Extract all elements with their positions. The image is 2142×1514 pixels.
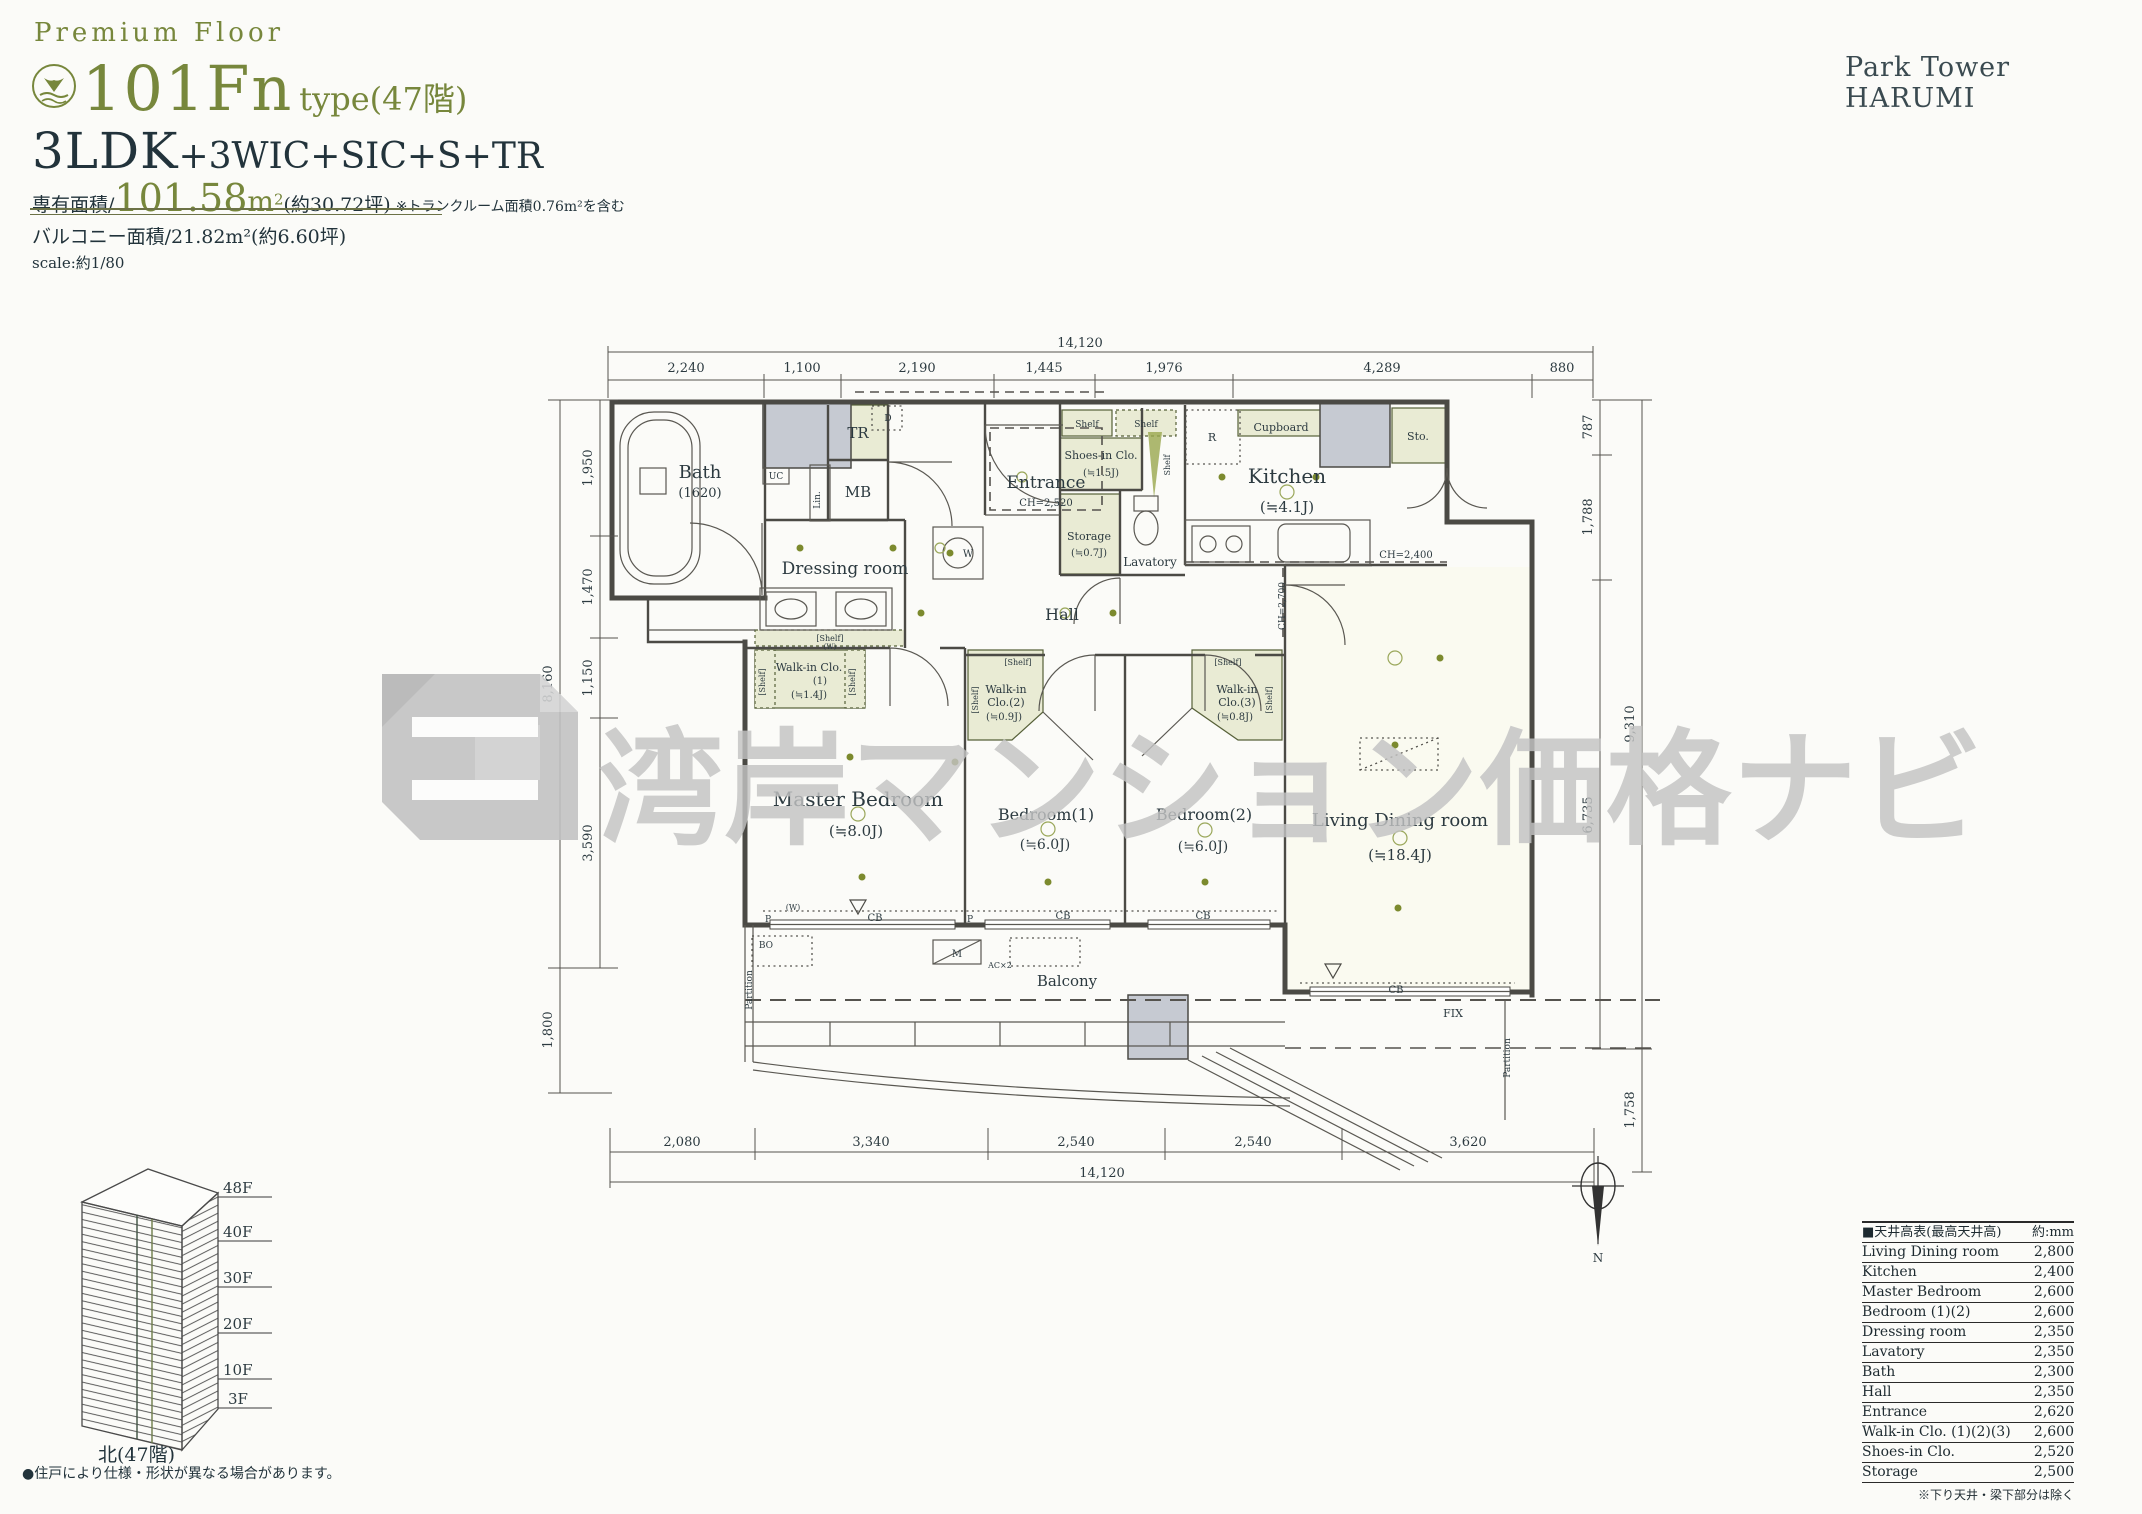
- dim-bottom-total: 14,120: [1079, 1166, 1125, 1181]
- ceiling-height-table: ■天井高表(最高天井高) 約:mm Living Dining room 2,8…: [1862, 1221, 2074, 1505]
- row-height: 2,600: [2034, 1304, 2074, 1320]
- bath-size: (1620): [678, 486, 721, 501]
- dim-right-1: 787: [1581, 415, 1596, 440]
- dim-top-7: 880: [1550, 361, 1575, 376]
- row-room: Bedroom (1)(2): [1862, 1304, 1970, 1320]
- row-room: Walk-in Clo. (1)(2)(3): [1862, 1424, 2011, 1440]
- table-row: Shoes-in Clo. 2,520: [1862, 1443, 2074, 1463]
- partition-right-label: Partition: [1503, 1038, 1513, 1078]
- brand-title: Park Tower HARUMI: [1845, 52, 2142, 114]
- dim-top-2: 1,100: [783, 361, 820, 376]
- duct-label: D: [884, 414, 891, 424]
- cb-label-4: CB: [1389, 985, 1404, 996]
- uc-label: UC: [769, 472, 784, 482]
- type-name: 101Fn: [82, 52, 293, 125]
- fix-label: FIX: [1443, 1007, 1463, 1020]
- row-height: 2,620: [2034, 1404, 2074, 1420]
- row-room: Storage: [1862, 1464, 1918, 1480]
- layout-suffix: +3WIC+SIC+S+TR: [178, 136, 543, 177]
- table-row: Bath 2,300: [1862, 1363, 2074, 1383]
- p-label-1: P: [765, 915, 771, 925]
- shoes-closet-size: (≒1.5J): [1083, 468, 1119, 479]
- m-label: M: [952, 949, 962, 960]
- whale-logo-icon: [30, 62, 78, 110]
- dim-top-1: 2,240: [667, 361, 704, 376]
- pillar-balcony: [1128, 995, 1188, 1059]
- sto-label: Sto.: [1407, 430, 1429, 443]
- row-room: Hall: [1862, 1384, 1892, 1400]
- dim-bottom-2: 3,340: [852, 1135, 889, 1150]
- row-height: 2,400: [2034, 1264, 2074, 1280]
- table-row: Dressing room 2,350: [1862, 1323, 2074, 1343]
- row-room: Dressing room: [1862, 1324, 1966, 1340]
- shoes-shelf-3: Shelf: [1163, 454, 1172, 476]
- hall-label: Hall: [1045, 605, 1079, 624]
- dim-bottom-5: 3,620: [1449, 1135, 1486, 1150]
- ceiling-table-unit: 約:mm: [2032, 1221, 2074, 1240]
- wic3-shelf: [Shelf]: [1214, 658, 1241, 667]
- shelf-w-label: [Shelf]: [816, 634, 843, 643]
- fridge-label: R: [1208, 431, 1217, 444]
- compass-n-label: N: [1593, 1251, 1604, 1265]
- dressing-room-label: Dressing room: [782, 559, 909, 579]
- dim-top-6: 4,289: [1363, 361, 1400, 376]
- table-row: Hall 2,350: [1862, 1383, 2074, 1403]
- dim-left-below: 1,800: [541, 1011, 556, 1048]
- table-row: Entrance 2,620: [1862, 1403, 2074, 1423]
- washer-label: W: [963, 549, 974, 560]
- floor-20f: 20F: [223, 1315, 253, 1333]
- type-suffix: type(47階): [299, 80, 467, 118]
- floor-48f: 48F: [223, 1179, 253, 1197]
- table-row: Walk-in Clo. (1)(2)(3) 2,600: [1862, 1423, 2074, 1443]
- row-height: 2,350: [2034, 1344, 2074, 1360]
- tower-right-face: [182, 1193, 218, 1450]
- cb-label-2: CB: [1056, 911, 1071, 922]
- table-row: Kitchen 2,400: [1862, 1263, 2074, 1283]
- lavatory-label: Lavatory: [1123, 555, 1177, 569]
- dim-bottom-3: 2,540: [1057, 1135, 1094, 1150]
- row-room: Bath: [1862, 1364, 1895, 1380]
- ceiling-table-header: ■天井高表(最高天井高) 約:mm: [1862, 1221, 2074, 1243]
- kitchen-size: (≒4.1J): [1260, 498, 1314, 516]
- row-room: Kitchen: [1862, 1264, 1917, 1280]
- cupboard-label: Cupboard: [1253, 421, 1308, 434]
- floorplan-page: Bath (1620) TR MB Dressing room Entrance…: [0, 0, 2142, 1514]
- dim-top-4: 1,445: [1025, 361, 1062, 376]
- dim-bottom-4: 2,540: [1234, 1135, 1271, 1150]
- row-height: 2,300: [2034, 1364, 2074, 1380]
- dim-top-total: 14,120: [1057, 336, 1103, 351]
- storage-label: Storage: [1067, 530, 1111, 543]
- row-height: 2,350: [2034, 1324, 2074, 1340]
- ac-label: AC×2: [987, 961, 1012, 970]
- table-row: Bedroom (1)(2) 2,600: [1862, 1303, 2074, 1323]
- compass-needle: [1592, 1186, 1604, 1246]
- dim-bottom-1: 2,080: [663, 1135, 700, 1150]
- floor-40f: 40F: [223, 1223, 253, 1241]
- trunk-room-label: TR: [847, 424, 869, 442]
- wic1-number: (1): [813, 676, 827, 687]
- watermark-text: 湾岸マンション価格ナビ: [598, 688, 1984, 869]
- table-row: Storage 2,500: [1862, 1463, 2074, 1483]
- dim-right-2: 1,788: [1581, 498, 1596, 535]
- type-title: 101Fntype(47階): [82, 52, 467, 125]
- building-elevation: 48F 40F 30F 20F 10F 3F: [40, 1155, 330, 1485]
- toilet: [1134, 511, 1158, 545]
- scale-line: scale:約1/80: [32, 252, 124, 273]
- dim-left-2: 1,470: [581, 568, 596, 605]
- shoes-shelf-1: Shelf: [1075, 420, 1099, 430]
- layout-title: 3LDK+3WIC+SIC+S+TR: [32, 122, 543, 180]
- ceiling-table-footnote: ※下り天井・梁下部分は除く: [1862, 1483, 2074, 1505]
- row-height: 2,520: [2034, 1444, 2074, 1460]
- dim-top-3: 2,190: [898, 361, 935, 376]
- floor-30f: 30F: [223, 1269, 253, 1287]
- partition-left-label: Partition: [745, 970, 755, 1010]
- floor-10f: 10F: [223, 1361, 253, 1379]
- ceiling-table-title: ■天井高表(最高天井高): [1862, 1221, 2001, 1240]
- balcony-label: Balcony: [1037, 972, 1098, 990]
- shoes-closet-label: Shoes-in Clo.: [1064, 449, 1137, 462]
- table-row: Master Bedroom 2,600: [1862, 1283, 2074, 1303]
- kitchen-label: Kitchen: [1248, 464, 1326, 488]
- watermark-logo: [375, 665, 590, 850]
- meter-box-label: MB: [845, 483, 871, 501]
- floor-labels: 48F 40F 30F 20F 10F 3F: [223, 1179, 253, 1408]
- kitchen-ch-label: CH=2,400: [1379, 550, 1432, 561]
- storage-size: (≒0.7J): [1071, 548, 1107, 559]
- stove: [1192, 526, 1250, 562]
- outer-wall-step: [648, 598, 745, 642]
- dim-top-5: 1,976: [1145, 361, 1182, 376]
- w-vent-label: (W): [786, 903, 800, 912]
- row-height: 2,350: [2034, 1384, 2074, 1400]
- row-room: Lavatory: [1862, 1344, 1925, 1360]
- row-room: Shoes-in Clo.: [1862, 1444, 1955, 1460]
- hall-ch-label: CH=2,700: [1278, 582, 1288, 630]
- premium-floor-eyebrow: Premium Floor: [34, 18, 284, 48]
- shoes-shelf-wedge: [1148, 432, 1162, 498]
- entrance-ch-label: CH=2,520: [1019, 498, 1072, 509]
- header-divider: [30, 208, 442, 215]
- row-room: Master Bedroom: [1862, 1284, 1981, 1300]
- dim-right-below: 1,758: [1623, 1091, 1638, 1128]
- row-height: 2,500: [2034, 1464, 2074, 1480]
- row-height: 2,600: [2034, 1424, 2074, 1440]
- floor-3f: 3F: [228, 1390, 248, 1408]
- compass: N: [1572, 1156, 1624, 1265]
- elevation-note: ●住戸により仕様・形状が異なる場合があります。: [22, 1463, 341, 1483]
- row-height: 2,800: [2034, 1244, 2074, 1260]
- balcony-area-line: バルコニー面積/21.82m²(約6.60坪): [32, 222, 346, 249]
- p-label-2: P: [967, 915, 973, 925]
- shelf-w-sub: (W): [824, 643, 837, 651]
- layout-main: 3LDK: [32, 122, 178, 180]
- kitchen-sink: [1278, 524, 1350, 562]
- table-row: Lavatory 2,350: [1862, 1343, 2074, 1363]
- pillar-top-left: [763, 403, 851, 468]
- table-row: Living Dining room 2,800: [1862, 1243, 2074, 1263]
- cb-label-3: CB: [1196, 911, 1211, 922]
- bo-label: BO: [759, 941, 773, 951]
- tower-front-face: [82, 1202, 182, 1450]
- pillar-top-right: [1320, 403, 1390, 467]
- wic2-shelf: [Shelf]: [1004, 658, 1031, 667]
- shoes-shelf-2: Shelf: [1134, 420, 1158, 430]
- wic1-label: Walk-in Clo.: [776, 661, 843, 674]
- row-height: 2,600: [2034, 1284, 2074, 1300]
- dim-left-1: 1,950: [581, 449, 596, 486]
- bath-label: Bath: [679, 462, 722, 483]
- cb-label-1: CB: [868, 913, 883, 924]
- row-room: Living Dining room: [1862, 1244, 1999, 1260]
- row-room: Entrance: [1862, 1404, 1927, 1420]
- vanity-counter: [760, 588, 892, 630]
- entrance-label: Entrance: [1007, 473, 1086, 493]
- linen-label: Lin.: [813, 491, 823, 509]
